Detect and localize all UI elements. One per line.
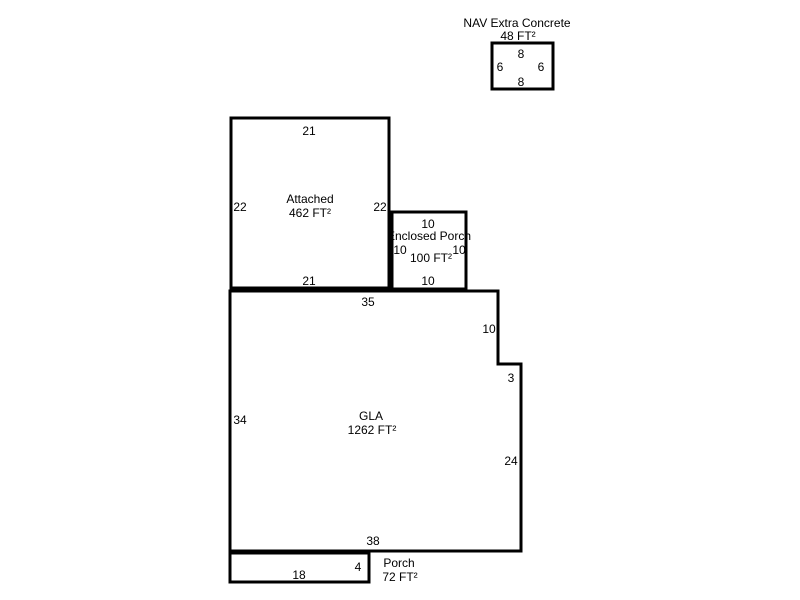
gla-dim-right: 24: [504, 454, 518, 468]
area-gla: 35 10 3 24 34 GLA 1262 FT² 38: [230, 291, 521, 551]
floorplan-svg: NAV Extra Concrete 48 FT² 8 6 6 8 21 22 …: [0, 0, 800, 600]
enclosed-porch-dim-bottom: 10: [421, 274, 435, 288]
enclosed-porch-dim-left: 10: [393, 243, 407, 257]
porch-dim-bottom: 18: [292, 568, 306, 582]
gla-dim-left: 34: [233, 413, 247, 427]
porch-area: 72 FT²: [382, 570, 417, 584]
nav-extra-concrete-label: NAV Extra Concrete: [463, 16, 570, 30]
area-porch: 4 18 Porch 72 FT²: [230, 553, 418, 584]
enclosed-porch-area: 100 FT²: [410, 251, 452, 265]
area-attached: 21 22 Attached 462 FT² 22 21: [231, 118, 389, 288]
floorplan-sketch: NAV Extra Concrete 48 FT² 8 6 6 8 21 22 …: [0, 0, 800, 600]
gla-area: 1262 FT²: [348, 423, 397, 437]
attached-dim-bottom: 21: [302, 274, 316, 288]
nav-extra-concrete-dim-left: 6: [497, 60, 504, 74]
enclosed-porch-dim-right: 10: [452, 243, 466, 257]
porch-label: Porch: [383, 556, 414, 570]
attached-label: Attached: [286, 192, 333, 206]
gla-dim-upper-right: 10: [482, 322, 496, 336]
nav-extra-concrete-area: 48 FT²: [500, 29, 535, 43]
attached-dim-top: 21: [302, 124, 316, 138]
gla-dim-bottom: 38: [366, 534, 380, 548]
attached-dim-right: 22: [373, 200, 387, 214]
gla-label: GLA: [359, 409, 383, 423]
nav-extra-concrete-dim-top: 8: [518, 47, 525, 61]
enclosed-porch-label: Enclosed Porch: [387, 229, 471, 243]
nav-extra-concrete-dim-right: 6: [538, 60, 545, 74]
gla-dim-step: 3: [508, 371, 515, 385]
attached-dim-left: 22: [233, 200, 247, 214]
area-enclosed-porch: 10 Enclosed Porch 10 100 FT² 10 10: [387, 212, 471, 289]
gla-dim-top: 35: [361, 295, 375, 309]
area-nav-extra-concrete: NAV Extra Concrete 48 FT² 8 6 6 8: [463, 16, 570, 89]
nav-extra-concrete-dim-bottom: 8: [518, 75, 525, 89]
attached-area: 462 FT²: [289, 206, 331, 220]
porch-dim-right: 4: [355, 560, 362, 574]
